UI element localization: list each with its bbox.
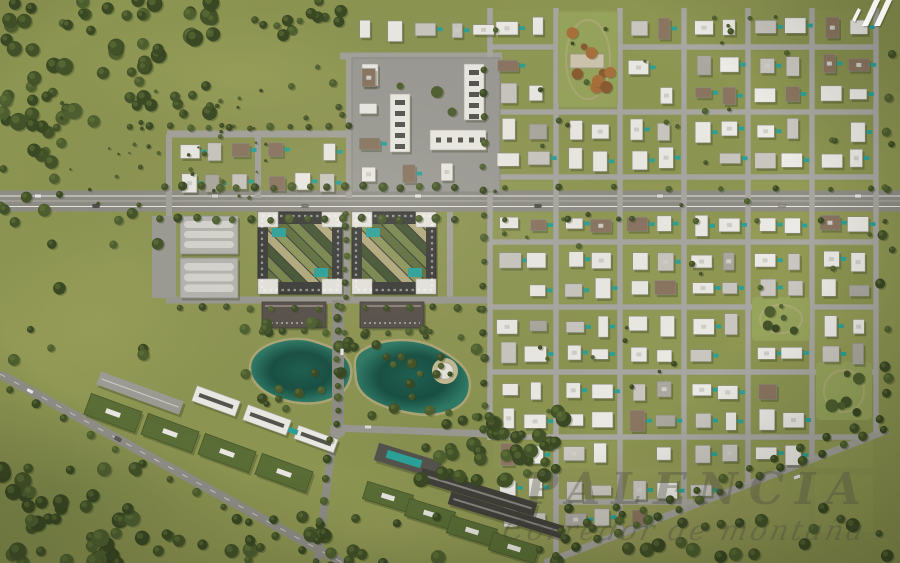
vignette-layer	[0, 0, 900, 563]
master-plan-aerial: PALENCIA Corredor de montaña	[0, 0, 900, 563]
scene-svg	[0, 0, 900, 563]
